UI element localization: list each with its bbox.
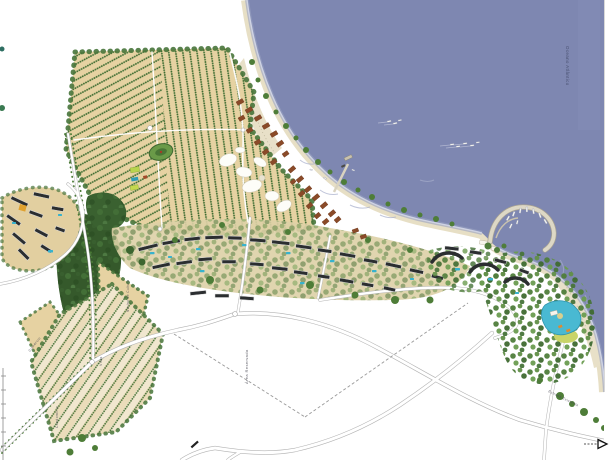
master-plan-canvas: Oceano Atlântico Área Reservada Vilas Nú… <box>0 0 614 460</box>
vilas-label: Vilas <box>99 356 103 366</box>
page-margin <box>604 0 614 460</box>
master-plan-map: Oceano Atlântico Área Reservada Vilas Nú… <box>0 0 614 460</box>
reserved-area-label: Área Reservada <box>244 349 249 384</box>
nucleo-label: Núcleo de Cultura <box>126 280 130 312</box>
condominio-label: Condomínio <box>55 406 59 428</box>
ocean-label: Oceano Atlântico <box>565 46 570 86</box>
